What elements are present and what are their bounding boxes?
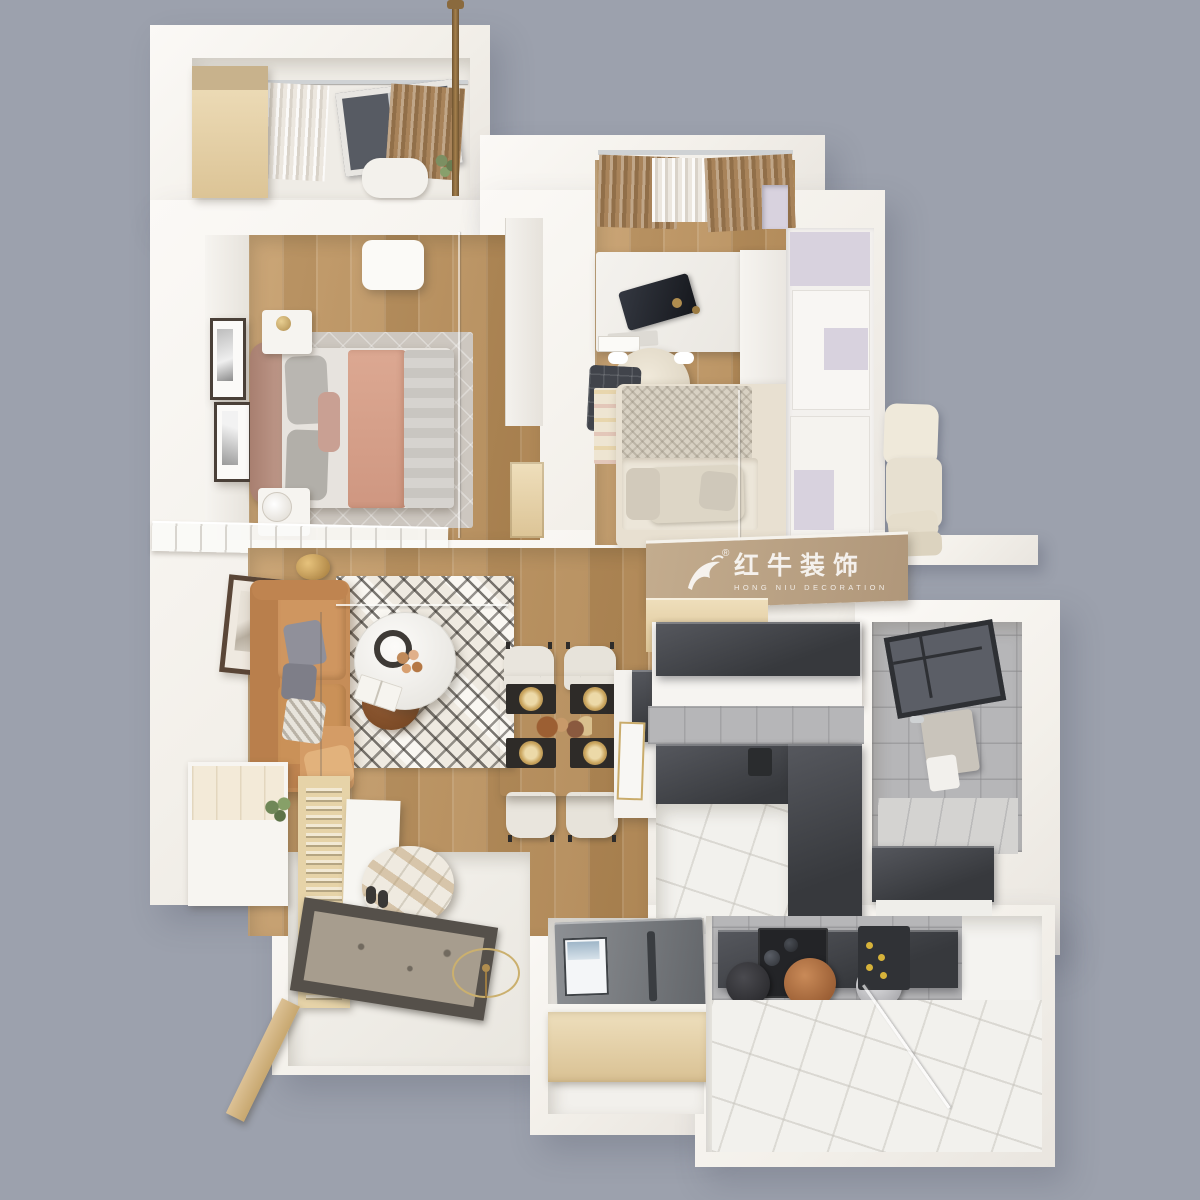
dining-chair-4 [566,792,618,838]
gold-plate [583,687,607,711]
wood-console [548,1012,712,1082]
ceiling-ring-light [452,948,520,998]
chair-leg [548,642,552,649]
wardrobe-panel-1 [790,232,870,286]
study-pillow-accent [698,470,738,512]
kitchen-floor [656,804,788,934]
study-wardrobe [786,228,874,546]
round-lamp [262,492,292,522]
table-deco-flowers [392,646,428,676]
study-bed-blanket [622,386,752,462]
slippers [366,886,376,904]
ring-light-tassel [485,972,487,998]
bed-duvet-pink [348,350,406,508]
imac-screen [618,273,698,331]
study-wall-niche [762,185,788,229]
chair-leg [612,835,616,842]
watermark-text: 红牛装饰 HONG NIU DECORATION [734,554,888,592]
chair-armrest-right [674,352,694,364]
desk-deco-gold-2 [692,306,700,314]
kitchen-upper-counter [656,622,860,676]
bottle [764,950,780,966]
frame-art [217,329,233,381]
nightstand-top [262,310,312,354]
brand-name-en: HONG NIU DECORATION [734,583,888,592]
bedroom-wardrobe [505,218,543,426]
gold-plate [519,741,543,765]
sofa-armrest-top [252,580,348,600]
slippers-2 [378,890,388,908]
ring-light-pendant [482,964,490,972]
bed-blanket-gray [404,350,454,508]
floorplan-render: ® 红牛装饰 HONG NIU DECORATION [0,0,1200,1200]
floor-lamp-pole [452,0,459,196]
dining-chair-3 [506,792,556,838]
floor-lamp-dome [296,554,330,580]
sofa-backrest [250,582,280,790]
open-book [598,336,640,352]
knob [866,964,873,971]
bedroom-wood-cabinet [510,462,544,538]
knob [880,972,887,979]
chair-leg [508,835,512,842]
chair-armrest-left [608,352,628,364]
placemat-1 [506,684,556,714]
wardrobe-panel-3 [794,470,834,530]
window-mullion [893,646,982,665]
chair-leg [566,642,570,649]
gold-plate [583,741,607,765]
bull-logo: ® [682,552,726,592]
brand-name-cn: 红牛装饰 [734,554,888,579]
kitchen-counter-arm [788,744,862,934]
toilet-flush-plate [926,754,960,792]
wall-art-frame-1 [210,318,246,400]
wall-art-frame-2 [214,402,252,482]
chair-leg [568,835,572,842]
bathroom-vanity [872,846,994,902]
lamp-pole-knob [447,0,464,9]
sheer-curtain [263,82,330,181]
kitchen-bin [748,748,772,776]
study-desk [596,252,762,352]
chair-leg [506,642,510,649]
watermark: ® 红牛装饰 HONG NIU DECORATION [682,550,902,596]
dining-table [500,676,628,796]
bed-pillow-accent [318,392,340,452]
window-mullion [919,636,933,698]
cabinet-top-shelf [192,66,268,90]
placemat-4 [570,738,620,768]
air-conditioner [362,240,424,290]
table-lamp-gold [276,316,291,331]
glass-partition-horizontal [336,604,508,606]
toilet-handle [910,716,924,723]
door-intercom-screen [563,937,609,997]
desk-deco-gold [672,298,682,308]
glass-edge-bedroom [458,232,460,538]
entry-door-panel [554,917,705,1014]
appliance-yellow-knobs [858,926,910,990]
door-handle [647,931,657,1001]
placemat-3 [506,738,556,768]
balcony-cabinet [192,66,268,198]
leaning-frame [617,722,646,801]
study-pillow-small [626,468,660,520]
knob [866,942,873,949]
utility-tile-floor [712,1000,1042,1152]
intercom-display [567,941,600,960]
chair-leg [550,835,554,842]
wardrobe-panel-2 [824,328,868,370]
frame-art [222,411,238,465]
sofa-pillow-gray-2 [281,663,317,701]
chair-leg [610,642,614,649]
registered-mark: ® [722,548,729,559]
balcony-chair [362,158,428,198]
gold-plate [519,687,543,711]
bottle-2 [784,938,798,952]
book-spine [373,680,383,705]
bed-headboard [250,342,284,504]
kitchen-tile-wall [648,706,864,744]
table-centerpiece [536,716,592,738]
placemat-2 [570,684,620,714]
knob [878,954,885,961]
entry-plant [258,792,298,826]
entry-counter [188,762,288,906]
glass-edge-study [738,390,740,546]
